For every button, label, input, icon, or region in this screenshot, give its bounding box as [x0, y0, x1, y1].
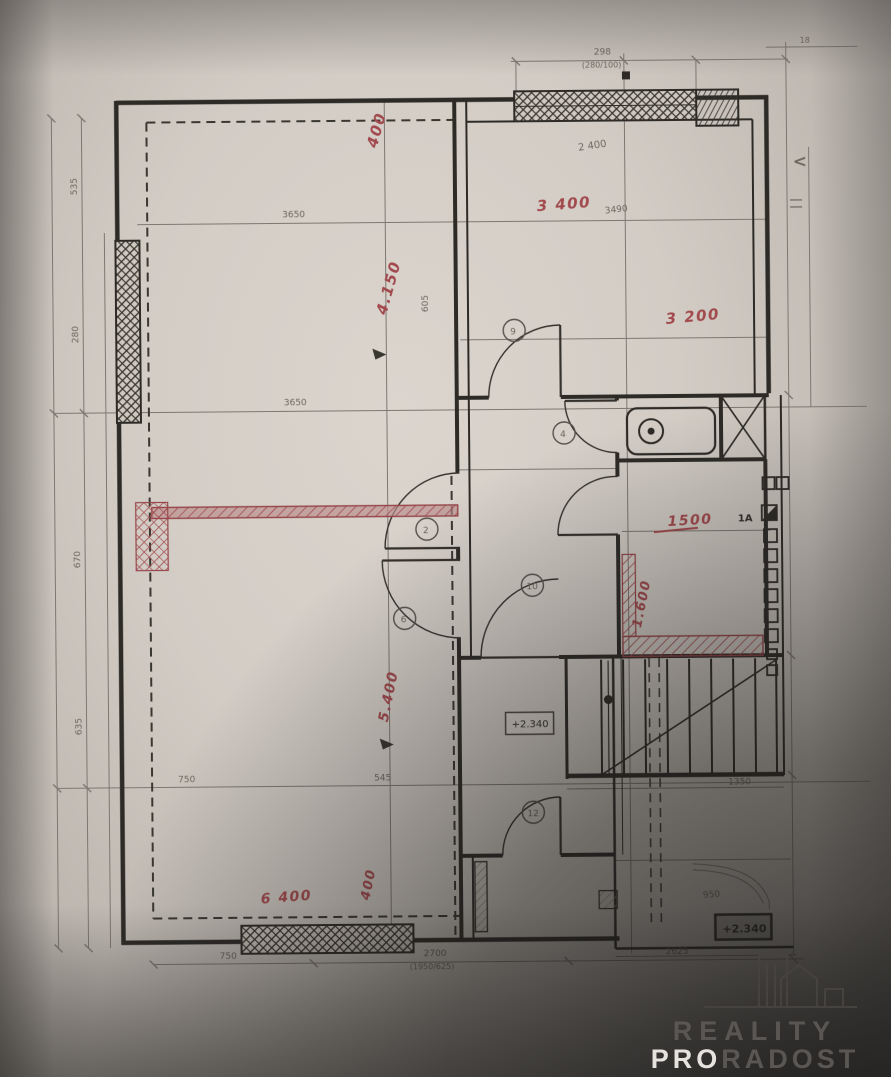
window-top — [514, 90, 696, 122]
insulation-dashed-lines — [146, 118, 661, 940]
red-dim-room-bl-height: 5.400 — [376, 669, 402, 723]
watermark-brand-pro: PRO — [651, 1044, 722, 1074]
dim-bl-width-2: 545 — [374, 773, 391, 783]
dim-left-2: 280 — [71, 326, 81, 344]
door-ref: 4 — [553, 422, 575, 444]
dim-top-width: 298 — [594, 48, 612, 58]
fixtures — [468, 70, 769, 932]
door-ref-number: 2 — [423, 526, 429, 536]
dim-bl-width-1: 750 — [178, 775, 196, 785]
dim-bottom-2: 2700 — [424, 949, 447, 959]
window-left — [115, 241, 141, 423]
dim-mid-vert: 605 — [421, 295, 431, 312]
floor-plan-photo: 400 4.150 3 400 3 200 1500 1.600 5.400 4… — [0, 0, 891, 1077]
watermark-brand-top: REALITY — [629, 1017, 881, 1045]
dim-bottom-1: 750 — [220, 952, 238, 962]
dim-left-4: 635 — [75, 718, 85, 735]
door-ref-number: 9 — [510, 327, 516, 337]
door-ref-number: 12 — [527, 809, 539, 819]
dim-landing: 950 — [703, 890, 721, 901]
red-dim-room-bl-width: 6 400 — [260, 888, 312, 908]
red-dim-room-tr-width: 3 400 — [536, 193, 592, 215]
red-dim-room-tr-height: 3 200 — [665, 305, 721, 328]
watermark-brand-rest: RADOST — [721, 1044, 859, 1074]
dim-top-right: 18 — [800, 36, 810, 45]
level-value: +2.340 — [722, 922, 766, 935]
section-label: 1A — [738, 513, 753, 524]
watermark-brand-bottom: PRORADOST — [629, 1045, 881, 1075]
threshold-hatch — [599, 891, 617, 909]
door-ref-number: 6 — [401, 615, 407, 625]
dim-bottom-2-sub: (1950/625) — [410, 962, 455, 971]
dim-arrow-1 — [372, 349, 386, 360]
level-markers: +2.340 +2.340 — [506, 710, 772, 941]
level-value: +2.340 — [512, 719, 549, 730]
dim-arrow-2 — [380, 738, 394, 749]
dim-stairs: 1350 — [728, 777, 751, 787]
dim-left-3: 670 — [73, 551, 83, 569]
window-bottom — [241, 924, 413, 953]
pier-hatch — [475, 862, 488, 932]
dim-top-width-sub: (280/100) — [582, 60, 622, 69]
ventilation-shaft — [721, 395, 766, 459]
floor-plan-drawing: 400 4.150 3 400 3 200 1500 1.600 5.400 4… — [0, 0, 891, 1077]
door-reference-bubbles: 9 4 2 6 10 12 — [391, 319, 578, 825]
dim-tr-width: 2 400 — [577, 139, 607, 154]
watermark: REALITY PRORADOST — [629, 941, 881, 1075]
interior-walls — [454, 97, 785, 940]
red-dim-top-offset: 400 — [363, 110, 390, 150]
bathtub — [627, 408, 715, 455]
door-ref: 9 — [503, 319, 525, 341]
stairs — [566, 658, 784, 776]
watermark-buildings-logo — [629, 941, 881, 1013]
north-chevron: < — [793, 152, 807, 172]
floor-plan-sheet: 400 4.150 3 400 3 200 1500 1.600 5.400 4… — [0, 0, 891, 1077]
level-marker-entry: +2.340 — [715, 914, 771, 939]
red-dim-room-sm-width: 1500 — [667, 511, 713, 530]
masonry-pier — [696, 89, 738, 125]
red-dim-room-tl: 4.150 — [372, 259, 404, 318]
level-marker-hall: +2.340 — [506, 712, 554, 734]
dim-tl-width-upper: 3650 — [282, 210, 305, 220]
door-ref: 6 — [394, 607, 416, 629]
dim-left-1: 535 — [70, 178, 80, 195]
dim-tl-width-lower: 3650 — [284, 398, 307, 408]
door-ref: 2 — [416, 518, 438, 540]
stair-start-dot — [604, 695, 613, 704]
red-dim-bottom-offset: 400 — [358, 867, 379, 902]
marker-square — [622, 71, 630, 79]
door-ref-number: 10 — [526, 582, 538, 592]
door-ref-number: 4 — [560, 430, 566, 440]
red-hatch-patch-left — [136, 502, 169, 570]
door-ref: 10 — [521, 574, 543, 596]
red-hatch-band-bottom — [623, 635, 763, 656]
